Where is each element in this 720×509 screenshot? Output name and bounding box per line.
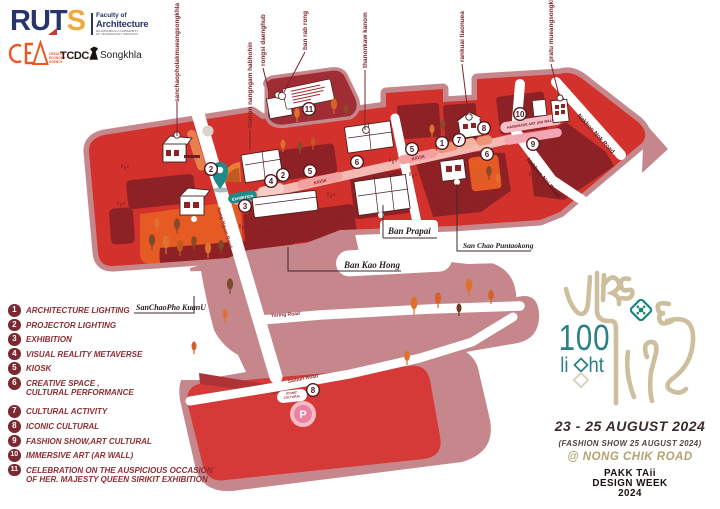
svg-text:thanonkaw kanom: thanonkaw kanom	[362, 12, 369, 68]
svg-text:1: 1	[440, 139, 445, 148]
svg-text:7: 7	[457, 136, 462, 145]
svg-text:2: 2	[281, 171, 286, 180]
svg-text:5: 5	[308, 167, 313, 176]
svg-text:2: 2	[209, 165, 214, 174]
svg-text:8: 8	[311, 386, 316, 395]
svg-text:10: 10	[516, 110, 525, 119]
svg-text:3: 3	[243, 202, 248, 211]
svg-text:ht: ht	[588, 354, 604, 377]
svg-text:rongsi daenghub: rongsi daenghub	[260, 14, 267, 66]
svg-text:5: 5	[410, 145, 415, 154]
svg-text:San Chao Puntaokong: San Chao Puntaokong	[463, 241, 534, 250]
svg-text:sanchaopholakmueangsongkhla: sanchaopholakmueangsongkhla	[174, 2, 181, 102]
svg-text:li: li	[560, 354, 568, 377]
svg-text:11: 11	[305, 105, 314, 114]
svg-text:6: 6	[485, 150, 490, 159]
svg-text:ban rab rong: ban rab rong	[302, 11, 309, 50]
svg-text:Ban Prapai: Ban Prapai	[387, 226, 431, 236]
svg-text:8: 8	[482, 124, 487, 133]
svg-text:4: 4	[269, 177, 274, 186]
svg-text:thanon nangngam habhohin: thanon nangngam habhohin	[247, 42, 254, 128]
svg-text:pratu mueangsongkhla: pratu mueangsongkhla	[548, 0, 555, 62]
svg-text:rankuai tiaonuea: rankuai tiaonuea	[459, 11, 466, 62]
svg-text:Ban Kao Hong: Ban Kao Hong	[343, 260, 401, 270]
svg-text:6: 6	[355, 158, 360, 167]
svg-text:9: 9	[531, 140, 536, 149]
svg-text:100: 100	[559, 317, 611, 357]
